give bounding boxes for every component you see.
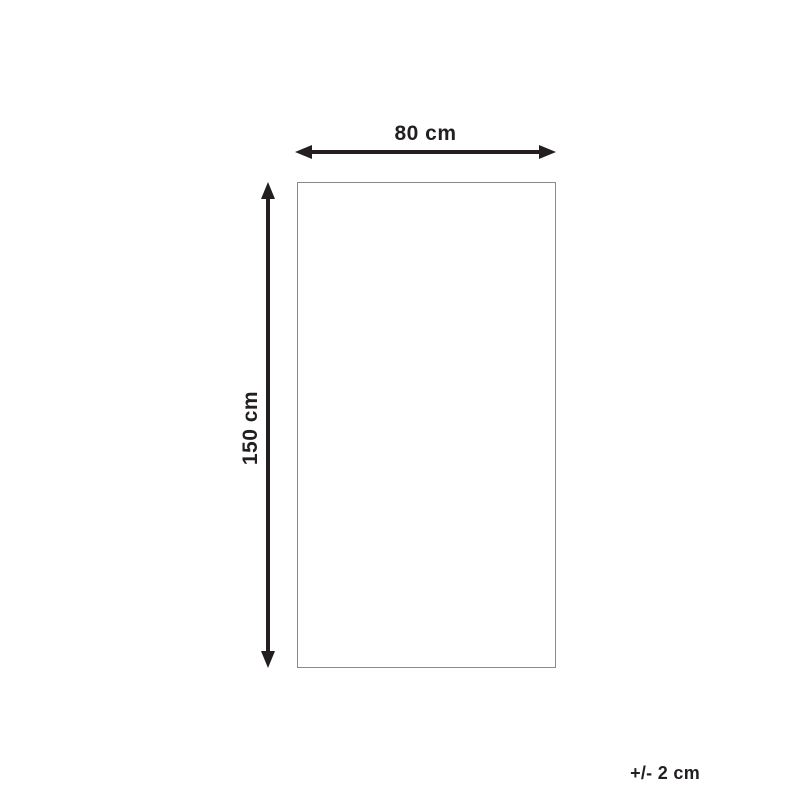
height-arrow-line bbox=[266, 194, 270, 656]
height-dimension-arrow bbox=[260, 182, 276, 668]
width-dimension-arrow bbox=[295, 144, 556, 160]
width-arrow-line bbox=[307, 150, 544, 154]
arrowhead-right-icon bbox=[539, 145, 556, 159]
width-dimension-label: 80 cm bbox=[295, 122, 556, 146]
product-outline-rectangle bbox=[297, 182, 556, 668]
arrowhead-down-icon bbox=[261, 651, 275, 668]
dimension-diagram: 80 cm 150 cm +/- 2 cm bbox=[0, 0, 800, 800]
tolerance-label: +/- 2 cm bbox=[630, 763, 700, 784]
